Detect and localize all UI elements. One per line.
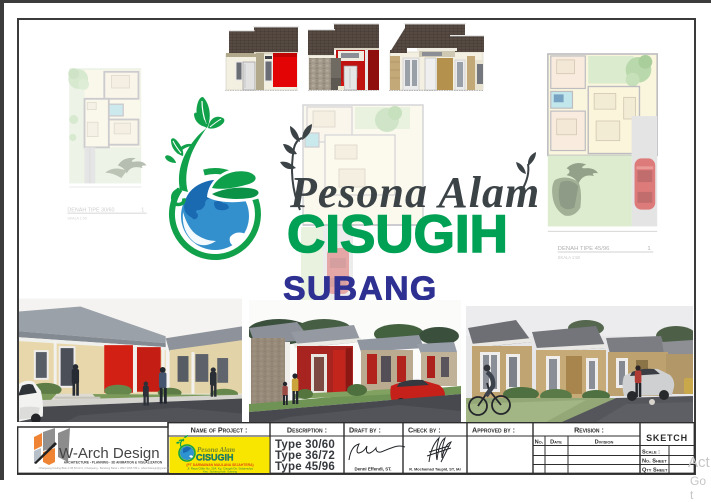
svg-text:1: 1 [141,207,144,213]
svg-text:Cihanjuang Kavling Blok 4 CB 5: Cihanjuang Kavling Blok 4 CB 50 No.5, Ci… [39,466,172,470]
svg-text:Kec. Subang Kab. Subang: Kec. Subang Kab. Subang [203,470,237,474]
svg-text:ARCHITECTURE - PLANNING - 3D A: ARCHITECTURE - PLANNING - 3D ANIMATION &… [64,461,163,465]
svg-text:CISUGIH: CISUGIH [196,453,234,463]
svg-text:Type 45/96: Type 45/96 [275,461,335,473]
svg-text:1: 1 [647,246,650,252]
svg-text:Description :: Description : [287,426,327,435]
svg-text:No. Sheet: No. Sheet [642,459,667,465]
svg-text:Check by :: Check by : [408,426,441,435]
svg-text:Revision :: Revision : [574,426,604,435]
svg-text:Scale :: Scale : [642,450,660,456]
svg-text:Approved by :: Approved by : [472,426,515,435]
svg-text:DENAH TIPE 30/60: DENAH TIPE 30/60 [67,207,114,213]
svg-text:R. Mochamad Taupid, ST, IAI: R. Mochamad Taupid, ST, IAI [409,468,460,472]
svg-text:Name of Project :: Name of Project : [191,426,248,435]
svg-text:CISUGIH: CISUGIH [287,205,508,264]
svg-text:SKALA 1:50: SKALA 1:50 [67,216,86,220]
svg-text:No.: No. [535,440,544,446]
svg-text:Draft by :: Draft by : [349,426,381,435]
svg-text:Denni Effendi, ST.: Denni Effendi, ST. [354,467,391,472]
svg-text:Qty Sheet: Qty Sheet [642,468,668,474]
svg-text:SKETCH: SKETCH [646,433,688,443]
svg-text:W-Arch Design: W-Arch Design [59,445,160,462]
svg-text:Date: Date [550,440,562,446]
svg-text:Division: Division [595,440,614,446]
